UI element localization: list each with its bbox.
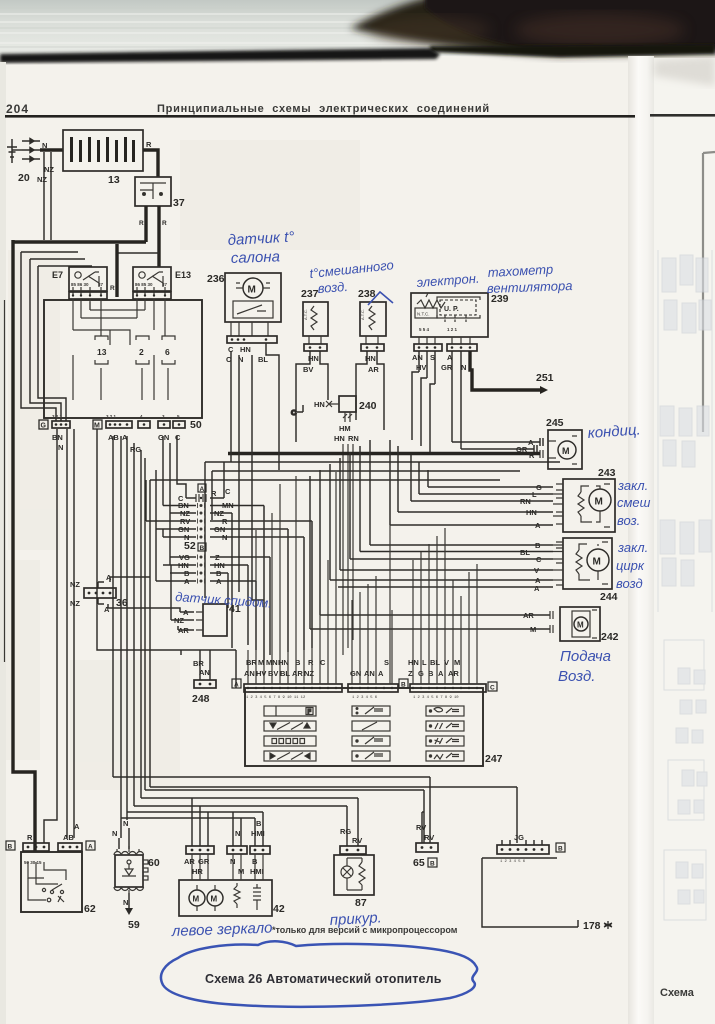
svg-text:GR: GR: [198, 857, 210, 866]
svg-text:237: 237: [301, 288, 319, 300]
svg-text:238: 238: [358, 288, 376, 300]
svg-text:прикур.: прикур.: [329, 909, 382, 929]
svg-text:N: N: [222, 533, 227, 542]
svg-text:AN: AN: [412, 353, 423, 362]
svg-text:A: A: [104, 605, 110, 614]
svg-text:JG: JG: [514, 833, 524, 842]
svg-text:A.T.C.: A.T.C.: [360, 309, 365, 320]
svg-text:HV: HV: [256, 669, 266, 678]
svg-text:AN: AN: [199, 668, 210, 677]
svg-text:Схема 26 Автоматический отопит: Схема 26 Автоматический отопитель: [205, 972, 442, 986]
svg-text:F: F: [308, 710, 312, 716]
svg-text:M: M: [193, 895, 200, 904]
svg-text:S: S: [384, 658, 389, 667]
svg-text:N: N: [58, 443, 63, 452]
svg-text:NZ: NZ: [44, 165, 54, 174]
svg-text:S: S: [430, 353, 435, 362]
svg-text:HMI: HMI: [250, 867, 264, 876]
svg-text:87: 87: [98, 282, 104, 287]
svg-text:R: R: [162, 220, 167, 227]
svg-text:3 2 1: 3 2 1: [52, 414, 63, 419]
svg-text:GR: GR: [441, 363, 453, 372]
svg-text:RG: RG: [130, 445, 141, 454]
svg-text:M: M: [530, 625, 536, 634]
svg-text:U. P.: U. P.: [444, 306, 459, 313]
svg-text:251: 251: [536, 372, 554, 384]
svg-text:B: B: [401, 682, 406, 689]
svg-text:V: V: [534, 566, 539, 575]
svg-text:NZ: NZ: [174, 616, 184, 625]
svg-text:HN: HN: [334, 434, 345, 443]
svg-text:E13: E13: [175, 270, 191, 280]
svg-text:BL: BL: [258, 355, 268, 364]
svg-text:A: A: [438, 669, 444, 678]
svg-text:20: 20: [18, 172, 30, 184]
svg-text:вентилятора: вентилятора: [487, 278, 573, 296]
svg-text:AR: AR: [368, 365, 379, 374]
svg-text:HN: HN: [314, 400, 325, 409]
svg-text:R: R: [529, 451, 535, 460]
svg-text:RV: RV: [416, 823, 426, 832]
svg-text:M: M: [454, 658, 460, 667]
svg-text:R: R: [27, 833, 33, 842]
svg-text:M: M: [595, 497, 603, 508]
svg-text:закл.: закл.: [617, 540, 648, 555]
svg-text:204: 204: [6, 102, 29, 116]
svg-text:AR: AR: [448, 669, 459, 678]
svg-text:A: A: [200, 486, 205, 493]
svg-text:воз.: воз.: [617, 513, 640, 528]
svg-text:закл.: закл.: [617, 478, 648, 493]
svg-text:L: L: [422, 658, 427, 667]
svg-text:AN: AN: [364, 669, 375, 678]
svg-text:65: 65: [413, 857, 425, 869]
svg-text:NZ: NZ: [304, 669, 314, 678]
svg-text:240: 240: [359, 400, 377, 412]
svg-text:M: M: [577, 621, 584, 630]
svg-text:RN: RN: [348, 434, 359, 443]
svg-text:B: B: [252, 857, 258, 866]
svg-text:AR: AR: [178, 626, 189, 635]
svg-text:242: 242: [601, 631, 619, 643]
svg-text:A: A: [528, 438, 534, 447]
svg-text:R: R: [146, 140, 152, 149]
svg-text:5 5 4: 5 5 4: [419, 327, 430, 332]
svg-text:N: N: [42, 141, 47, 150]
svg-text:датчик t°: датчик t°: [227, 229, 294, 249]
svg-text:245: 245: [546, 417, 564, 429]
svg-text:A: A: [234, 682, 239, 689]
svg-text:BL: BL: [430, 658, 440, 667]
svg-text:A: A: [184, 577, 190, 586]
svg-text:N.T.C.: N.T.C.: [417, 312, 430, 317]
svg-text:NZ: NZ: [37, 175, 47, 184]
svg-text:50: 50: [190, 419, 202, 431]
svg-text:13: 13: [108, 174, 120, 186]
svg-text:R: R: [139, 220, 144, 227]
svg-text:6: 6: [165, 347, 170, 357]
svg-text:A: A: [74, 822, 80, 831]
svg-text:236: 236: [207, 273, 225, 285]
svg-text:85 86 30: 85 86 30: [71, 282, 89, 287]
svg-text:BV: BV: [303, 365, 313, 374]
svg-text:BL: BL: [280, 669, 290, 678]
svg-text:M: M: [562, 446, 570, 456]
svg-text:87: 87: [355, 897, 367, 909]
svg-text:62: 62: [84, 903, 96, 915]
svg-text:1 2 3 4 5 6 7 8 9 10 11 12: 1 2 3 4 5 6 7 8 9 10 11 12: [246, 696, 306, 700]
svg-text:2: 2: [139, 347, 144, 357]
svg-text:N: N: [235, 829, 240, 838]
svg-text:RG: RG: [340, 827, 351, 836]
svg-text:248: 248: [192, 693, 210, 705]
svg-text:BR: BR: [193, 659, 204, 668]
svg-text:C: C: [536, 555, 542, 564]
svg-text:36: 36: [116, 597, 128, 609]
svg-text:HN: HN: [526, 508, 537, 517]
svg-text:A: A: [216, 577, 222, 586]
svg-text:M: M: [593, 557, 601, 568]
svg-text:BV: BV: [268, 669, 278, 678]
svg-text:A: A: [88, 844, 93, 851]
svg-text:A: A: [535, 521, 541, 530]
svg-text:B: B: [8, 844, 13, 851]
svg-text:R: R: [110, 285, 115, 292]
svg-text:NZ: NZ: [70, 580, 80, 589]
svg-text:HR: HR: [192, 867, 203, 876]
svg-text:M: M: [238, 867, 244, 876]
svg-text:цирк: цирк: [616, 558, 645, 573]
svg-text:C: C: [320, 658, 326, 667]
svg-text:42: 42: [273, 903, 285, 915]
svg-text:Z: Z: [408, 669, 413, 678]
svg-text:Схема: Схема: [660, 987, 695, 999]
svg-text:возд.: возд.: [317, 279, 348, 296]
svg-text:C: C: [490, 685, 495, 692]
svg-text:A: A: [378, 669, 384, 678]
svg-text:50 30 15: 50 30 15: [24, 860, 42, 865]
svg-text:N: N: [461, 363, 466, 372]
svg-text:левое зеркало: левое зеркало: [171, 919, 273, 940]
svg-text:37: 37: [173, 197, 185, 209]
svg-text:B: B: [535, 541, 541, 550]
svg-text:Возд.: Возд.: [558, 668, 595, 685]
svg-text:60: 60: [148, 857, 160, 869]
svg-text:B: B: [200, 545, 205, 552]
svg-text:HV: HV: [416, 363, 426, 372]
svg-text:M: M: [211, 895, 218, 904]
svg-text:RN: RN: [520, 497, 531, 506]
svg-text:HM: HM: [339, 424, 351, 433]
svg-text:M: M: [94, 423, 100, 430]
svg-text:смеш: смеш: [617, 495, 651, 510]
svg-text:M: M: [248, 285, 256, 296]
svg-text:G: G: [41, 423, 47, 430]
svg-text:A.T.C.: A.T.C.: [303, 309, 308, 320]
svg-text:N: N: [230, 857, 235, 866]
svg-text:RV: RV: [352, 836, 362, 845]
svg-text:RV: RV: [424, 833, 434, 842]
svg-text:1 2 3 4 5 6: 1 2 3 4 5 6: [352, 696, 378, 700]
svg-text:G: G: [536, 483, 542, 492]
svg-text:L: L: [532, 490, 537, 499]
svg-text:N: N: [123, 898, 128, 907]
svg-text:салона: салона: [231, 248, 281, 267]
svg-text:возд: возд: [616, 576, 643, 591]
svg-text:HMI: HMI: [251, 829, 265, 838]
svg-text:3 2 1: 3 2 1: [106, 414, 117, 419]
svg-text:Подача: Подача: [560, 648, 611, 665]
svg-text:GR: GR: [516, 445, 528, 454]
svg-text:N: N: [123, 819, 128, 828]
svg-text:HN: HN: [240, 345, 251, 354]
svg-text:R: R: [308, 658, 314, 667]
svg-text:AR: AR: [523, 611, 534, 620]
svg-text:BL: BL: [520, 548, 530, 557]
svg-text:52: 52: [184, 540, 196, 552]
svg-text:AB: AB: [63, 833, 74, 842]
svg-text:243: 243: [598, 467, 616, 479]
svg-text:A: A: [534, 584, 540, 593]
svg-text:AN: AN: [244, 669, 255, 678]
svg-text:NZ: NZ: [70, 599, 80, 608]
svg-text:1 2 3 4 5 6: 1 2 3 4 5 6: [500, 860, 526, 864]
svg-text:13: 13: [97, 347, 107, 357]
svg-text:87: 87: [162, 282, 168, 287]
svg-text:1 2 1: 1 2 1: [447, 327, 458, 332]
svg-text:247: 247: [485, 753, 503, 765]
svg-text:B: B: [430, 861, 435, 868]
svg-text:B: B: [558, 846, 563, 853]
svg-text:B: B: [256, 819, 262, 828]
svg-text:C: C: [225, 487, 231, 496]
svg-text:M: M: [258, 658, 264, 667]
svg-text:Принципиальные схемы электриче: Принципиальные схемы электрических соеди…: [157, 103, 490, 115]
svg-text:244: 244: [600, 591, 618, 603]
svg-text:E7: E7: [52, 270, 63, 280]
svg-text:59: 59: [128, 919, 140, 931]
svg-text:AR: AR: [184, 857, 195, 866]
svg-text:1 2 3 4 5 6 7 8 9 10: 1 2 3 4 5 6 7 8 9 10: [413, 696, 459, 700]
svg-text:86 85 30: 86 85 30: [135, 282, 153, 287]
svg-text:N: N: [112, 829, 117, 838]
svg-text:AR: AR: [292, 669, 303, 678]
svg-text:C: C: [175, 433, 181, 442]
svg-text:178: 178: [583, 920, 601, 932]
